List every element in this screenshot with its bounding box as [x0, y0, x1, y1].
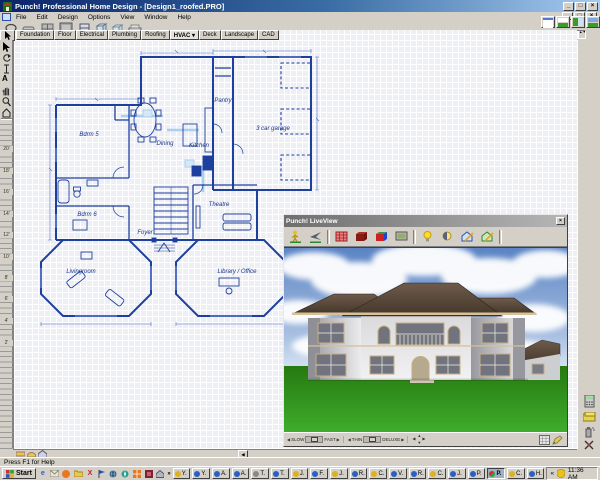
arrow-right-icon[interactable]: ▶ — [401, 437, 404, 442]
task-button[interactable]: V. — [389, 468, 407, 479]
orange-grid-icon[interactable] — [132, 469, 142, 479]
chevron-down-icon: ▾ — [192, 33, 195, 39]
flag-icon[interactable] — [97, 469, 107, 479]
folder-icon[interactable] — [73, 469, 83, 479]
room-label-library: Library / Office — [217, 269, 257, 275]
status-help-text: Press F1 for Help — [4, 459, 55, 466]
liveview-toolbar — [284, 227, 567, 247]
edit-pencil-icon[interactable] — [552, 435, 563, 445]
task-button[interactable]: A. — [232, 468, 250, 479]
liveview-title-bar[interactable]: Punch! LiveView × — [284, 215, 567, 227]
wireframe-box-icon[interactable] — [333, 229, 350, 245]
mail-icon[interactable] — [50, 469, 60, 479]
render-speed-control[interactable]: ◀ SLOW FAST ▶ — [287, 436, 344, 443]
room-label-garage: 3 car garage — [256, 126, 290, 132]
task-button[interactable]: P. — [468, 468, 486, 479]
detail-max-label: DELUXE — [382, 437, 400, 442]
vertical-ruler: 20' 18' 16' 14' 12' 10' 8' 6' 4' 2' — [0, 120, 13, 449]
nav-pad[interactable]: ▲▼ ◀▶ — [412, 434, 426, 446]
liveview-3d-viewport[interactable] — [284, 247, 567, 434]
materials-box-icon[interactable] — [583, 412, 597, 422]
split-view-icon[interactable] — [556, 16, 570, 28]
taskbar: Start e X » Y. Y. A. A. T. T. J. F. J. R… — [0, 466, 600, 480]
ibeam-icon[interactable] — [2, 64, 11, 74]
left-tool-column: A 20' 18' 16' 14' 12' 10' 8' 6' 4' 2' — [0, 40, 13, 449]
dimension-lines — [41, 49, 319, 326]
room-label-bdrm6: Bdrm 6 — [77, 212, 97, 218]
divider — [327, 230, 330, 244]
room-labels: Bdrm 5 Dining Kitchen Pantry 3 car garag… — [66, 98, 290, 275]
punch-app-window: Punch! Professional Home Design - [Desig… — [0, 0, 600, 480]
window-title: Punch! Professional Home Design - [Desig… — [15, 2, 224, 11]
task-button-active[interactable]: P. — [487, 468, 505, 479]
menu-file[interactable]: File — [16, 14, 26, 21]
status-bar: Press F1 for Help — [0, 457, 600, 466]
system-tray: « 11:36 AM — [546, 467, 598, 480]
tray-chevron[interactable]: « — [550, 470, 554, 477]
arrow-left-icon[interactable]: ◀ — [348, 437, 351, 442]
pointer-icon — [4, 31, 12, 40]
task-button[interactable]: T. — [271, 468, 289, 479]
task-button[interactable]: H. — [527, 468, 545, 479]
menu-options[interactable]: Options — [88, 14, 110, 21]
home-icon[interactable] — [156, 469, 166, 479]
pan-hand-icon[interactable] — [2, 86, 11, 96]
rotate-icon[interactable] — [2, 53, 11, 63]
liveview-window[interactable]: Punch! LiveView × — [283, 214, 568, 447]
task-button[interactable]: J. — [330, 468, 348, 479]
menu-help[interactable]: Help — [177, 14, 190, 21]
arrow-left-icon[interactable]: ◀ — [287, 437, 290, 442]
task-button[interactable]: C. — [428, 468, 446, 479]
minimize-button[interactable]: _ — [563, 2, 574, 11]
restore-button[interactable]: □ — [575, 2, 586, 11]
compass-icon[interactable] — [120, 469, 130, 479]
cut-icon[interactable] — [584, 440, 595, 451]
maroon-icon[interactable] — [144, 469, 154, 479]
media-icon[interactable]: X — [85, 469, 95, 479]
tab-floor[interactable]: Floor — [54, 30, 76, 40]
task-button[interactable]: C. — [369, 468, 387, 479]
menu-window[interactable]: Window — [144, 14, 167, 21]
ruler-label: 4' — [0, 318, 13, 324]
solid-box-icon[interactable] — [353, 229, 370, 245]
task-button[interactable]: R. — [409, 468, 427, 479]
ruler-label: 6' — [0, 296, 13, 302]
menu-view[interactable]: View — [120, 14, 134, 21]
start-button[interactable]: Start — [2, 468, 36, 479]
ruler-label: 18' — [0, 168, 13, 174]
ruler-label: 16' — [0, 189, 13, 195]
document-icon[interactable] — [2, 13, 11, 21]
task-button[interactable]: Y. — [173, 468, 191, 479]
divider — [413, 230, 416, 244]
tray-clock[interactable]: 11:36 AM — [568, 467, 594, 480]
task-button[interactable]: T. — [251, 468, 269, 479]
detail-slider[interactable] — [363, 436, 381, 443]
room-label-kitchen: Kitchen — [189, 143, 210, 149]
task-button[interactable]: C. — [507, 468, 525, 479]
hvac-ducts — [121, 110, 203, 192]
liveview-close-button[interactable]: × — [556, 217, 565, 225]
house-tool-icon[interactable] — [2, 108, 11, 118]
liveview-control-bar: ◀ SLOW FAST ▶ ◀ THIN DELUXE ▶ ▲▼ ◀▶ — [284, 432, 567, 446]
screen-icon[interactable] — [393, 229, 410, 245]
menu-edit[interactable]: Edit — [36, 14, 47, 21]
tab-landscape[interactable]: Landscape — [221, 30, 258, 40]
room-label-foyer: Foyer — [137, 230, 153, 236]
ie-icon[interactable]: e — [38, 469, 48, 479]
ruler-label: 20' — [0, 146, 13, 152]
liveview-title: Punch! LiveView — [286, 218, 338, 225]
task-button[interactable]: J. — [291, 468, 309, 479]
room-label-bdrm5: Bdrm 5 — [79, 132, 99, 138]
room-label-theatre: Theatre — [209, 202, 230, 208]
elevation-view-icon[interactable] — [571, 16, 585, 28]
arrow-right-icon[interactable]: ▶ — [337, 437, 340, 442]
tab-roofing[interactable]: Roofing — [141, 30, 170, 40]
task-button[interactable]: R. — [350, 468, 368, 479]
tab-hvac[interactable]: HVAC ▾ — [170, 30, 199, 40]
ruler-label: 8' — [0, 275, 13, 281]
spray-icon[interactable] — [584, 426, 595, 438]
textured-box-icon[interactable] — [373, 229, 390, 245]
speed-max-label: FAST — [324, 437, 335, 442]
detail-min-label: THIN — [352, 437, 363, 442]
stairs — [154, 187, 188, 234]
plan-view-icon[interactable] — [541, 16, 555, 28]
ball-icon[interactable] — [61, 469, 71, 479]
task-button[interactable]: F. — [310, 468, 328, 479]
light-icon[interactable] — [419, 229, 436, 245]
calculator-icon[interactable] — [584, 395, 595, 408]
garage-doors — [281, 63, 311, 180]
room-label-dining: Dining — [156, 141, 174, 147]
right-tool-column — [577, 40, 600, 449]
day-night-icon[interactable] — [439, 229, 456, 245]
tab-deck[interactable]: Deck — [199, 30, 221, 40]
task-button[interactable]: J. — [448, 468, 466, 479]
walk-icon[interactable] — [287, 229, 304, 245]
edit-house-green-icon[interactable] — [479, 229, 496, 245]
ruler-label: 14' — [0, 211, 13, 217]
tab-cad[interactable]: CAD — [258, 30, 279, 40]
title-bar: Punch! Professional Home Design - [Desig… — [0, 0, 600, 12]
close-button[interactable]: × — [587, 2, 598, 11]
ruler-label: 10' — [0, 254, 13, 260]
windows-logo-icon — [6, 470, 14, 478]
ruler-label: 2' — [0, 340, 13, 346]
text-tool-icon[interactable]: A — [2, 74, 8, 83]
zoom-icon[interactable] — [2, 97, 11, 107]
plan-tab-bar: Foundation Floor Electrical Plumbing Roo… — [16, 30, 279, 41]
tab-electrical[interactable]: Electrical — [76, 30, 108, 40]
tab-foundation[interactable]: Foundation — [16, 30, 54, 40]
divider — [499, 230, 502, 244]
quicklaunch-overflow[interactable]: » — [167, 471, 170, 477]
spinner-arrows-icon[interactable]: ▲▼ — [579, 31, 585, 38]
speed-min-label: SLOW — [291, 437, 304, 442]
snapshot-grid-icon[interactable] — [539, 435, 550, 445]
tab-plumbing[interactable]: Plumbing — [108, 30, 141, 40]
render-detail-control[interactable]: ◀ THIN DELUXE ▶ — [348, 436, 409, 443]
menu-design[interactable]: Design — [58, 14, 78, 21]
menu-bar: File Edit Design Options View Window Hel… — [0, 12, 600, 22]
tray-shield-icon[interactable] — [557, 469, 565, 478]
fly-icon[interactable] — [307, 229, 324, 245]
select-arrow-icon[interactable] — [2, 42, 11, 52]
ruler-label: 12' — [0, 232, 13, 238]
task-button[interactable]: Y. — [192, 468, 210, 479]
globe-icon[interactable] — [109, 469, 119, 479]
room-label-pantry: Pantry — [214, 98, 232, 104]
edit-house-blue-icon[interactable] — [459, 229, 476, 245]
room-label-livingroom: Livingroom — [66, 269, 95, 275]
app-icon — [3, 2, 12, 11]
3d-view-icon[interactable] — [586, 16, 600, 28]
speed-slider[interactable] — [305, 436, 323, 443]
task-button[interactable]: A. — [212, 468, 230, 479]
